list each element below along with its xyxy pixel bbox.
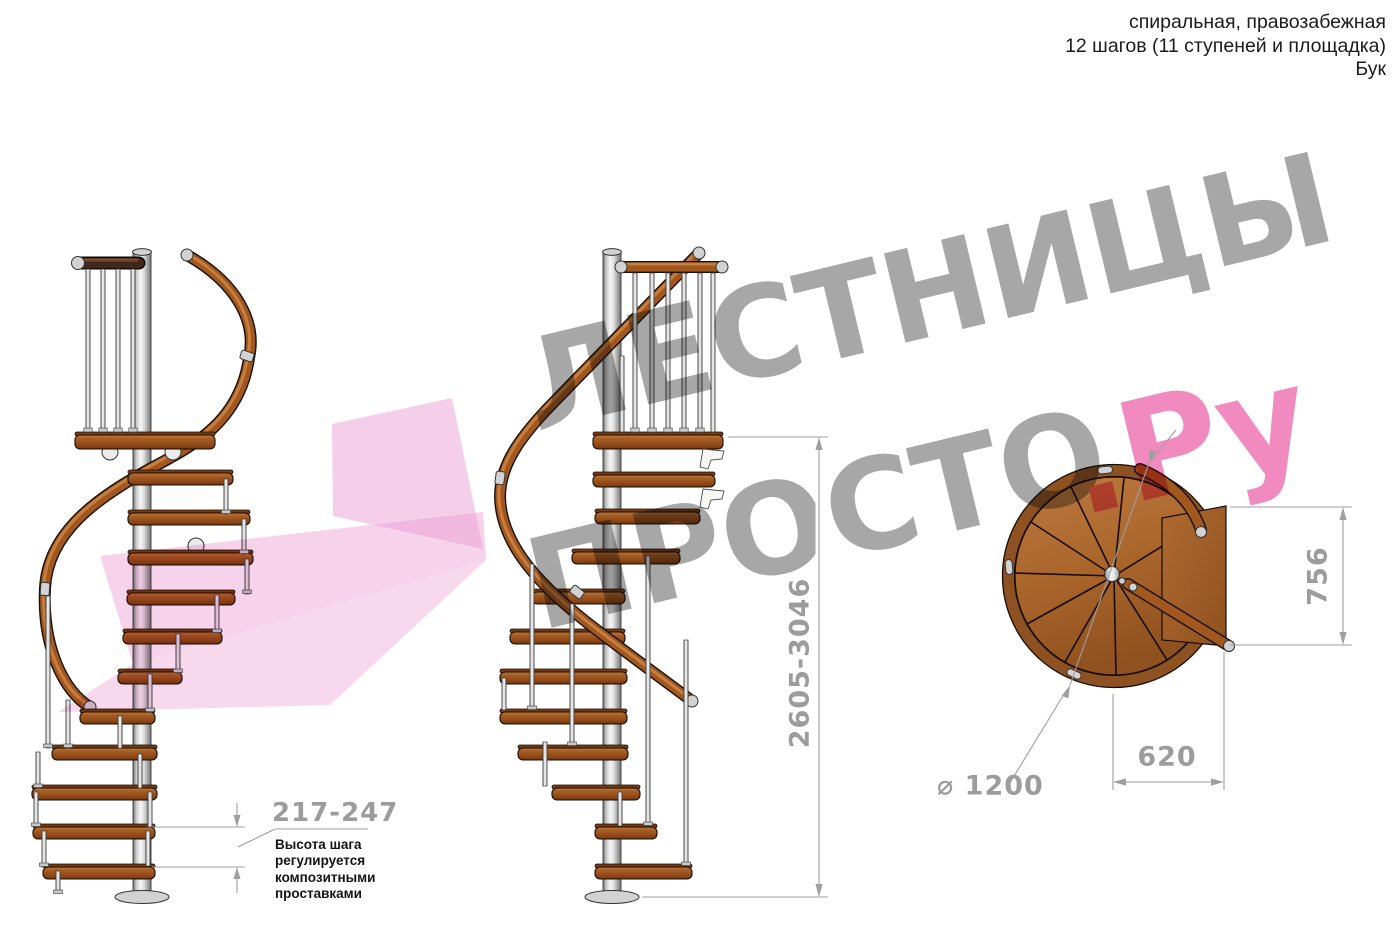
balusters [502, 273, 715, 866]
dim-756-lines [1230, 507, 1352, 645]
plan-baluster-nub [1097, 466, 1113, 474]
dim-diameter-leader [1008, 430, 1176, 786]
staircase-drawing [0, 0, 1400, 950]
balusters [32, 269, 252, 894]
dim-tread-width-value: 620 [1137, 742, 1196, 773]
dim-platform-depth-value: 756 [1303, 546, 1334, 605]
note-line: регулируется [275, 853, 375, 869]
spec-material: Бук [1065, 58, 1386, 82]
technical-drawing-canvas: ЛЕСТНИЦЫ ПРОСТО .Ру [0, 0, 1400, 950]
plan-handrail-ring [1009, 471, 1220, 682]
plan-pole-hub [1105, 567, 1120, 582]
spiral-handrail [495, 247, 705, 707]
wall-bracket [700, 449, 724, 469]
spec-steps: 12 шагов (11 ступеней и площадка) [1065, 35, 1386, 59]
pole-base-flange [585, 891, 639, 904]
dim-diameter-value: ⌀ 1200 [937, 771, 1044, 802]
plan-straight-rail [1128, 583, 1235, 652]
landing-railing [72, 257, 140, 270]
spec-type: спиральная, правозабежная [1065, 11, 1386, 35]
handrail-end-cap [181, 249, 193, 261]
dim-total-height-value: 2605-3046 [785, 578, 816, 749]
dimension-lines [0, 0, 1400, 950]
stair-plan-view [1003, 465, 1235, 688]
watermark-layer: ЛЕСТНИЦЫ ПРОСТО .Ру [0, 0, 1400, 950]
note-line: Высота шага [275, 837, 375, 853]
spiral-handrail [40, 249, 255, 713]
landing-railing [615, 261, 728, 273]
plan-rail-to-platform [1140, 469, 1207, 538]
center-pole [603, 252, 621, 898]
watermark-text-suffix: .Ру [1054, 346, 1323, 537]
step-height-note: Высота шага регулируется композитными пр… [275, 837, 375, 902]
note-line: проставками [275, 886, 375, 902]
dim-step-height-value: 217-247 [272, 798, 398, 828]
plan-tread-disc [1015, 477, 1213, 675]
watermark-text-line2: ПРОСТО [516, 390, 1120, 650]
center-pole [133, 252, 151, 898]
mounting-disc [102, 444, 118, 460]
watermark-arrow [0, 0, 1400, 950]
plan-tread-sector-lines [1015, 478, 1198, 675]
pole-base-flange [115, 891, 169, 904]
stair-side-view-back [495, 247, 728, 904]
spec-header: спиральная, правозабежная 12 шагов (11 с… [1065, 11, 1386, 82]
note-line: композитными [275, 870, 375, 886]
plan-landing-platform [1162, 506, 1226, 646]
wall-bracket [700, 489, 724, 509]
treads [32, 432, 253, 879]
treads [500, 432, 723, 879]
stair-side-view-front [32, 249, 255, 904]
watermark-text-line1: ЛЕСТНИЦЫ [511, 135, 1345, 451]
